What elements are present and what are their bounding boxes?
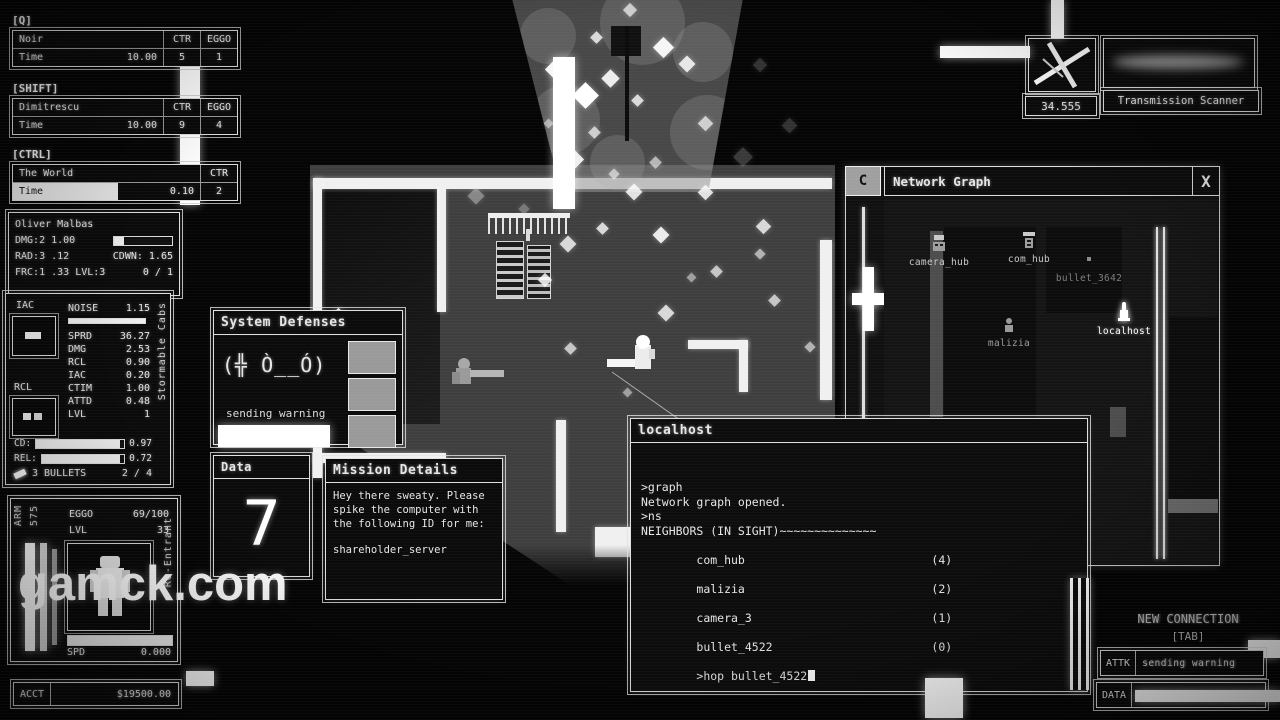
data-row-label: DATA xyxy=(1097,683,1132,707)
stat-label: CTIM xyxy=(68,382,92,395)
glitch-bar xyxy=(186,671,214,686)
stat-label: SPRD xyxy=(68,330,92,343)
defense-face: (╬ Ò__Ó) xyxy=(222,353,326,377)
player-frc-lvl: FRC:1 .33 LVL:3 xyxy=(15,265,105,281)
noise-bar xyxy=(68,318,146,324)
ability-value: 9 xyxy=(163,117,200,134)
ability-key-label: [SHIFT] xyxy=(12,82,238,95)
terminal-title: localhost xyxy=(631,419,1087,443)
terminal-neighbor-row: camera_3(1) xyxy=(641,596,1077,625)
terminal-prompt[interactable]: >hop bullet_4522 xyxy=(641,654,1077,683)
ability-panel-ctrl: [CTRL] The World CTR Time0.10 2 xyxy=(12,148,238,201)
scanner-value: 34.555 xyxy=(1041,100,1081,113)
spd-value: 0.000 xyxy=(141,647,171,658)
ability-panel-shift: [SHIFT] Dimitrescu CTR EGGO Time10.00 9 … xyxy=(12,82,238,135)
mission-panel: Mission Details Hey there sweaty. Please… xyxy=(325,458,503,600)
slot2-box[interactable] xyxy=(12,398,56,436)
spd-bar xyxy=(67,635,173,646)
rel-bar xyxy=(41,454,125,464)
flag-pole xyxy=(625,26,629,141)
graph-room xyxy=(1169,317,1218,502)
ammo-count: 3 xyxy=(32,468,38,479)
smoke-puff xyxy=(673,22,733,82)
defense-slot xyxy=(348,341,396,374)
terminal-line: >ns xyxy=(641,509,1077,524)
game-screen: [Q] Noir CTR EGGO Time10.00 5 1 [SHIFT] … xyxy=(0,0,1280,720)
account-row: ACCT $19500.00 xyxy=(13,682,179,706)
watermark: gamck.com xyxy=(18,556,288,612)
graph-pillar xyxy=(1110,407,1126,437)
player-character xyxy=(605,333,657,379)
rel-label: REL: xyxy=(14,453,37,464)
stat-label: IAC xyxy=(68,369,86,382)
ability-time-row: Time0.10 xyxy=(13,183,200,200)
particle-diamond xyxy=(782,118,798,134)
stat-label: ATTD xyxy=(68,395,92,408)
stat-value: 0.20 xyxy=(126,369,150,382)
glitch-bar xyxy=(925,678,963,718)
noise-label: NOISE xyxy=(68,302,98,315)
stat-value: 1.00 xyxy=(126,382,150,395)
glitch-stripes xyxy=(1070,578,1090,690)
graph-node-malizia[interactable]: malizia xyxy=(974,317,1044,349)
terminal-neighbor-row: com_hub(4) xyxy=(641,538,1077,567)
graph-node-localhost[interactable]: localhost xyxy=(1084,301,1164,337)
slot1-box[interactable] xyxy=(12,316,56,356)
ammo-frac: 2 / 4 xyxy=(122,468,152,479)
ability-col-header: EGGO xyxy=(200,99,237,117)
graph-corner-button[interactable]: C xyxy=(845,166,881,196)
stat-label: DMG xyxy=(68,343,86,356)
ammo-label: BULLETS xyxy=(44,468,86,479)
graph-pillar xyxy=(1168,499,1218,513)
mission-target: shareholder_server xyxy=(333,543,495,557)
scanner-label: Transmission Scanner xyxy=(1118,95,1244,107)
ability-col-header: CTR xyxy=(200,165,237,183)
ability-name: The World xyxy=(13,165,200,183)
glitch-bar xyxy=(218,425,330,447)
arm-label: ARM xyxy=(13,505,24,526)
terminal-cursor xyxy=(808,670,815,681)
person-icon xyxy=(1003,317,1015,333)
waveform-box xyxy=(1103,38,1255,88)
server-icon xyxy=(931,234,947,252)
bullet-icon xyxy=(34,413,42,420)
weapon-panel: IAC RCL NOISE 1.15 SPRD36.27 DMG2.53 RCL… xyxy=(5,293,171,485)
ability-time-row: Time10.00 xyxy=(13,117,163,134)
rel-value: 0.72 xyxy=(129,453,152,464)
noise-value: 1.15 xyxy=(126,302,150,315)
terminal-line: Network graph opened. xyxy=(641,495,1077,510)
new-connection-header: NEW CONNECTION xyxy=(1108,612,1268,626)
enemy-character xyxy=(450,350,506,392)
ability-panel-q: [Q] Noir CTR EGGO Time10.00 5 1 xyxy=(12,14,238,67)
player-card: Oliver Malbas DMG:2 1.00 RAD:3 .12 CDWN:… xyxy=(8,212,180,296)
defense-slot xyxy=(348,415,396,448)
data-panel-title: Data xyxy=(214,456,309,479)
slot2-label: RCL xyxy=(14,382,32,393)
graph-close-button[interactable]: X xyxy=(1192,167,1219,195)
graph-wall xyxy=(1156,227,1158,559)
stat-label: LVL xyxy=(68,408,86,421)
attk-row: ATTK sending warning xyxy=(1100,650,1264,676)
lvl-label: LVL xyxy=(69,525,87,536)
graph-node-camera-hub[interactable]: camera_hub xyxy=(894,234,984,268)
graph-scroll-handle[interactable] xyxy=(852,267,884,331)
glitch-bar xyxy=(1051,0,1064,38)
graph-wall xyxy=(1163,227,1165,559)
ability-value: 4 xyxy=(200,117,237,134)
mission-title: Mission Details xyxy=(326,459,502,483)
server-icon xyxy=(1021,231,1037,249)
player-frac: 0 / 1 xyxy=(143,265,173,281)
stat-label: RCL xyxy=(68,356,86,369)
smoke-puff xyxy=(520,8,576,64)
ability-value: 5 xyxy=(163,49,200,66)
bullet-icon xyxy=(25,332,41,339)
ability-value: 1 xyxy=(200,49,237,66)
attk-value: sending warning xyxy=(1136,658,1235,669)
compass-box xyxy=(1028,38,1096,92)
terminal-neighbor-row: bullet_4522(0) xyxy=(641,625,1077,654)
spd-label: SPD xyxy=(67,647,85,658)
arm-value: 575 xyxy=(29,505,40,526)
weapon-side-label: Stormable Cabs xyxy=(157,302,168,400)
player-name: Oliver Malbas xyxy=(15,217,173,233)
terminal-window: localhost >graph Network graph opened. >… xyxy=(630,418,1088,692)
ability-col-header: CTR xyxy=(163,31,200,49)
ability-key-label: [Q] xyxy=(12,14,238,27)
player-dmg: DMG:2 1.00 xyxy=(15,233,75,249)
system-defenses-title: System Defenses xyxy=(214,311,402,335)
scanner-label-box: Transmission Scanner xyxy=(1103,90,1259,112)
defense-slot xyxy=(348,378,396,411)
stat-value: 0.90 xyxy=(126,356,150,369)
eggo-label: EGGO xyxy=(69,509,93,520)
ability-value: 2 xyxy=(200,183,237,200)
terminal-neighbor-row: malizia(2) xyxy=(641,567,1077,596)
attk-label: ATTK xyxy=(1101,651,1136,675)
smoke-puff xyxy=(590,135,645,190)
terminal-body[interactable]: >graph Network graph opened. >ns NEIGHBO… xyxy=(641,480,1077,683)
ammo-icon xyxy=(13,468,26,479)
terminal-line: NEIGHBORS (IN SIGHT)~~~~~~~~~~~~~~ xyxy=(641,524,1077,539)
scanner-value-box: 34.555 xyxy=(1025,96,1097,116)
account-value: $19500.00 xyxy=(117,689,178,700)
glitch-bar xyxy=(553,57,575,209)
ability-col-header: CTR xyxy=(163,99,200,117)
glitch-bar xyxy=(1135,690,1280,702)
glitch-bar xyxy=(940,46,1030,58)
terminal-line: >graph xyxy=(641,480,1077,495)
stat-value: 0.48 xyxy=(126,395,150,408)
graph-title: Network Graph xyxy=(885,174,991,189)
bullet-icon xyxy=(23,413,31,420)
cd-label: CD: xyxy=(14,438,31,449)
stat-value: 36.27 xyxy=(120,330,150,343)
mission-body: Hey there sweaty. Please spike the compu… xyxy=(333,489,495,531)
ability-time-row: Time10.00 xyxy=(13,49,163,66)
particle-diamond xyxy=(733,147,753,167)
new-connection-key[interactable]: [TAB] xyxy=(1108,630,1268,643)
compass-cross-icon xyxy=(1029,39,1095,91)
ability-name: Noir xyxy=(13,31,163,49)
account-label: ACCT xyxy=(14,683,51,705)
graph-header: Network Graph X xyxy=(884,166,1220,196)
player-dmg-bar xyxy=(113,236,173,246)
particle-diamond xyxy=(753,58,767,72)
ability-key-label: [CTRL] xyxy=(12,148,238,161)
waveform xyxy=(1112,55,1244,69)
cd-bar xyxy=(35,439,125,449)
cd-value: 0.97 xyxy=(129,438,152,449)
player-rad: RAD:3 .12 xyxy=(15,249,69,265)
ability-col-header: EGGO xyxy=(200,31,237,49)
slot1-label: IAC xyxy=(16,300,34,311)
localhost-icon xyxy=(1115,301,1133,321)
graph-node-bullet-3642[interactable]: bullet_3642 xyxy=(1039,257,1139,284)
stat-value: 1 xyxy=(144,408,150,421)
vision-cone xyxy=(505,0,750,192)
dot-icon xyxy=(1087,257,1091,261)
ability-name: Dimitrescu xyxy=(13,99,163,117)
stat-value: 2.53 xyxy=(126,343,150,356)
defense-status: sending warning xyxy=(226,407,325,420)
player-cdwn: CDWN: 1.65 xyxy=(113,249,173,265)
smoke-puff xyxy=(670,95,745,170)
